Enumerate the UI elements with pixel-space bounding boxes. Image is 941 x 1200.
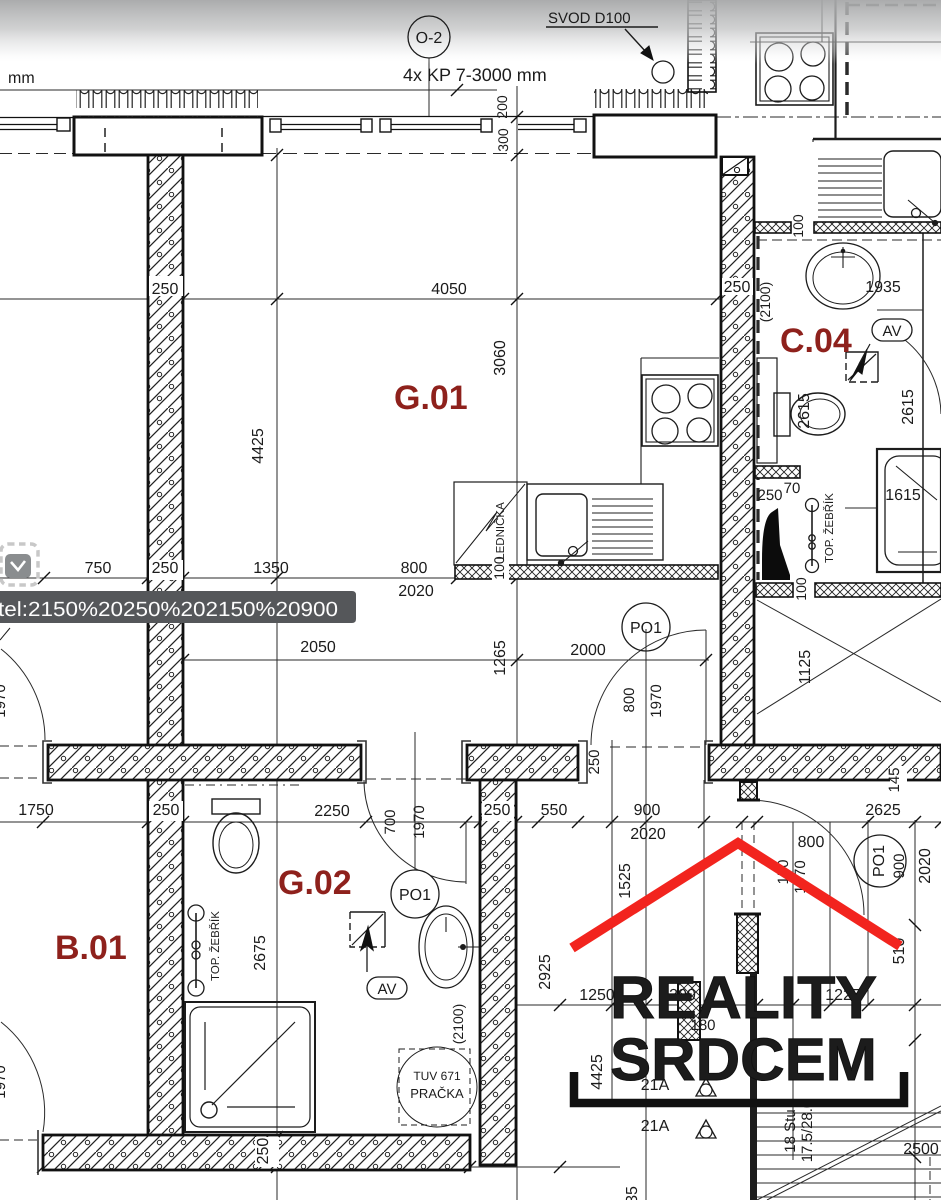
svg-text:2615: 2615 <box>796 393 813 429</box>
svg-text:750: 750 <box>85 560 112 577</box>
svg-text:800: 800 <box>621 687 638 712</box>
svg-text:2050: 2050 <box>300 639 336 656</box>
svg-text:TOP. ŽEBŘÍK: TOP. ŽEBŘÍK <box>822 493 836 563</box>
svg-text:SVOD D100: SVOD D100 <box>548 10 631 27</box>
svg-text:1350: 1350 <box>253 560 289 577</box>
svg-text:AV: AV <box>883 323 902 340</box>
svg-text:250: 250 <box>484 802 511 819</box>
svg-text:35: 35 <box>624 1186 641 1200</box>
svg-text:1750: 1750 <box>18 802 54 819</box>
svg-text:2615: 2615 <box>900 389 917 425</box>
svg-text:250: 250 <box>153 802 180 819</box>
svg-text:17.5/28.0: 17.5/28.0 <box>799 1100 816 1163</box>
svg-text:1265: 1265 <box>492 640 509 676</box>
svg-text:1970: 1970 <box>0 684 9 717</box>
svg-text:250: 250 <box>724 279 751 296</box>
svg-text:4425: 4425 <box>250 428 267 464</box>
svg-text:PO1: PO1 <box>871 845 888 877</box>
svg-text:G.02: G.02 <box>278 864 352 902</box>
svg-text:PRAČKA: PRAČKA <box>410 1086 464 1101</box>
svg-text:800: 800 <box>798 834 825 851</box>
svg-text:145: 145 <box>886 767 903 792</box>
svg-text:250: 250 <box>152 281 179 298</box>
svg-text:(2100): (2100) <box>450 1004 466 1044</box>
svg-text:4050: 4050 <box>431 281 467 298</box>
svg-text:250: 250 <box>152 560 179 577</box>
svg-text:250: 250 <box>757 487 782 504</box>
svg-text:PO1: PO1 <box>630 620 662 637</box>
svg-text:2020: 2020 <box>630 826 666 843</box>
svg-text:550: 550 <box>541 802 568 819</box>
svg-text:700: 700 <box>382 809 399 834</box>
svg-text:2925: 2925 <box>537 954 554 990</box>
svg-text:AV: AV <box>378 981 397 998</box>
svg-text:900: 900 <box>634 802 661 819</box>
svg-text:TOP. ŽEBŘÍK: TOP. ŽEBŘÍK <box>208 911 222 981</box>
svg-text:LEDNIČKA: LEDNIČKA <box>493 502 507 560</box>
svg-text:mm: mm <box>8 70 35 87</box>
svg-text:100: 100 <box>790 214 806 238</box>
svg-text:2500: 2500 <box>903 1141 939 1158</box>
svg-text:1125: 1125 <box>797 650 814 685</box>
svg-text:2000: 2000 <box>570 642 606 659</box>
svg-text:1970: 1970 <box>648 684 665 717</box>
svg-text:TUV 671: TUV 671 <box>413 1069 461 1083</box>
svg-text:2020: 2020 <box>398 583 434 600</box>
svg-text:1970: 1970 <box>411 805 428 838</box>
svg-text:2625: 2625 <box>865 802 901 819</box>
svg-text:2675: 2675 <box>252 935 269 971</box>
svg-text:SRDCEM: SRDCEM <box>610 1026 877 1093</box>
svg-text:900: 900 <box>891 853 908 878</box>
svg-text:G.01: G.01 <box>394 379 468 417</box>
svg-text:(2100): (2100) <box>757 282 773 322</box>
svg-text:2250: 2250 <box>314 803 350 820</box>
svg-text:250: 250 <box>586 749 603 774</box>
svg-text:3060: 3060 <box>492 340 509 376</box>
svg-text:100: 100 <box>793 577 809 601</box>
svg-text:250: 250 <box>255 1138 272 1165</box>
svg-text:1615: 1615 <box>885 487 921 504</box>
svg-text:2020: 2020 <box>917 848 934 884</box>
svg-text:300: 300 <box>495 128 511 152</box>
svg-text:O-2: O-2 <box>416 30 443 47</box>
svg-text:REALITY: REALITY <box>610 964 877 1031</box>
svg-text:4x KP 7-3000 mm: 4x KP 7-3000 mm <box>403 65 547 85</box>
svg-text:B.01: B.01 <box>55 929 127 967</box>
svg-text:C.04: C.04 <box>780 322 852 360</box>
svg-text:tel:2150%20250%202150%20900: tel:2150%20250%202150%20900 <box>0 598 338 621</box>
svg-text:4425: 4425 <box>589 1054 606 1090</box>
svg-text:800: 800 <box>401 560 428 577</box>
svg-text:70: 70 <box>784 480 801 497</box>
svg-text:1525: 1525 <box>617 863 634 899</box>
svg-text:PO1: PO1 <box>399 887 431 904</box>
svg-text:1935: 1935 <box>865 279 901 296</box>
svg-text:21A: 21A <box>641 1118 670 1135</box>
svg-text:200: 200 <box>494 95 510 119</box>
svg-text:18 Stu: 18 Stu <box>782 1109 799 1152</box>
svg-text:1970: 1970 <box>0 1065 9 1098</box>
